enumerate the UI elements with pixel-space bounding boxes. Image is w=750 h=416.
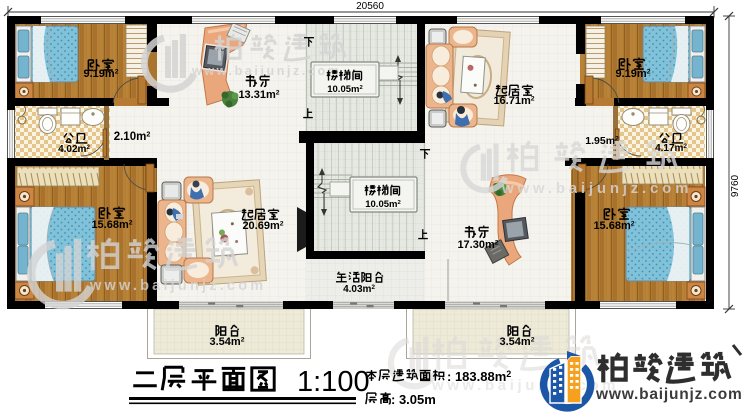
svg-text:17.30m2: 17.30m2 <box>457 239 498 251</box>
svg-text:www.baijunjz.com: www.baijunjz.com <box>595 386 743 403</box>
svg-text:9.19m2: 9.19m2 <box>616 68 651 80</box>
svg-text:13.31m2: 13.31m2 <box>238 89 279 101</box>
svg-text:20560: 20560 <box>356 1 384 12</box>
svg-text:20.69m2: 20.69m2 <box>242 220 283 232</box>
svg-text:10.05m2: 10.05m2 <box>327 84 363 95</box>
svg-text:16.71m2: 16.71m2 <box>493 95 534 107</box>
svg-text:: 3.05m: : 3.05m <box>391 392 436 407</box>
svg-text:www.baijunjz.com: www.baijunjz.com <box>89 278 266 294</box>
svg-text:: 183.88m2: : 183.88m2 <box>447 369 511 384</box>
svg-text:4.02m2: 4.02m2 <box>58 144 90 155</box>
svg-text:2.10m2: 2.10m2 <box>114 130 151 143</box>
svg-text:9.19m2: 9.19m2 <box>84 68 119 80</box>
svg-text:3.54m2: 3.54m2 <box>500 336 535 348</box>
svg-text:4.17m2: 4.17m2 <box>655 143 687 154</box>
svg-text:1:100: 1:100 <box>297 366 370 398</box>
svg-text:10.05m2: 10.05m2 <box>365 199 401 210</box>
svg-text:www.baijunjz.com: www.baijunjz.com <box>501 180 692 197</box>
svg-text:15.68m2: 15.68m2 <box>593 220 634 232</box>
svg-text:1.95m2: 1.95m2 <box>585 135 619 147</box>
svg-text:4.03m2: 4.03m2 <box>343 284 375 295</box>
svg-text:15.68m2: 15.68m2 <box>91 219 132 231</box>
svg-text:3.54m2: 3.54m2 <box>210 336 245 348</box>
svg-text:9760: 9760 <box>730 174 741 197</box>
